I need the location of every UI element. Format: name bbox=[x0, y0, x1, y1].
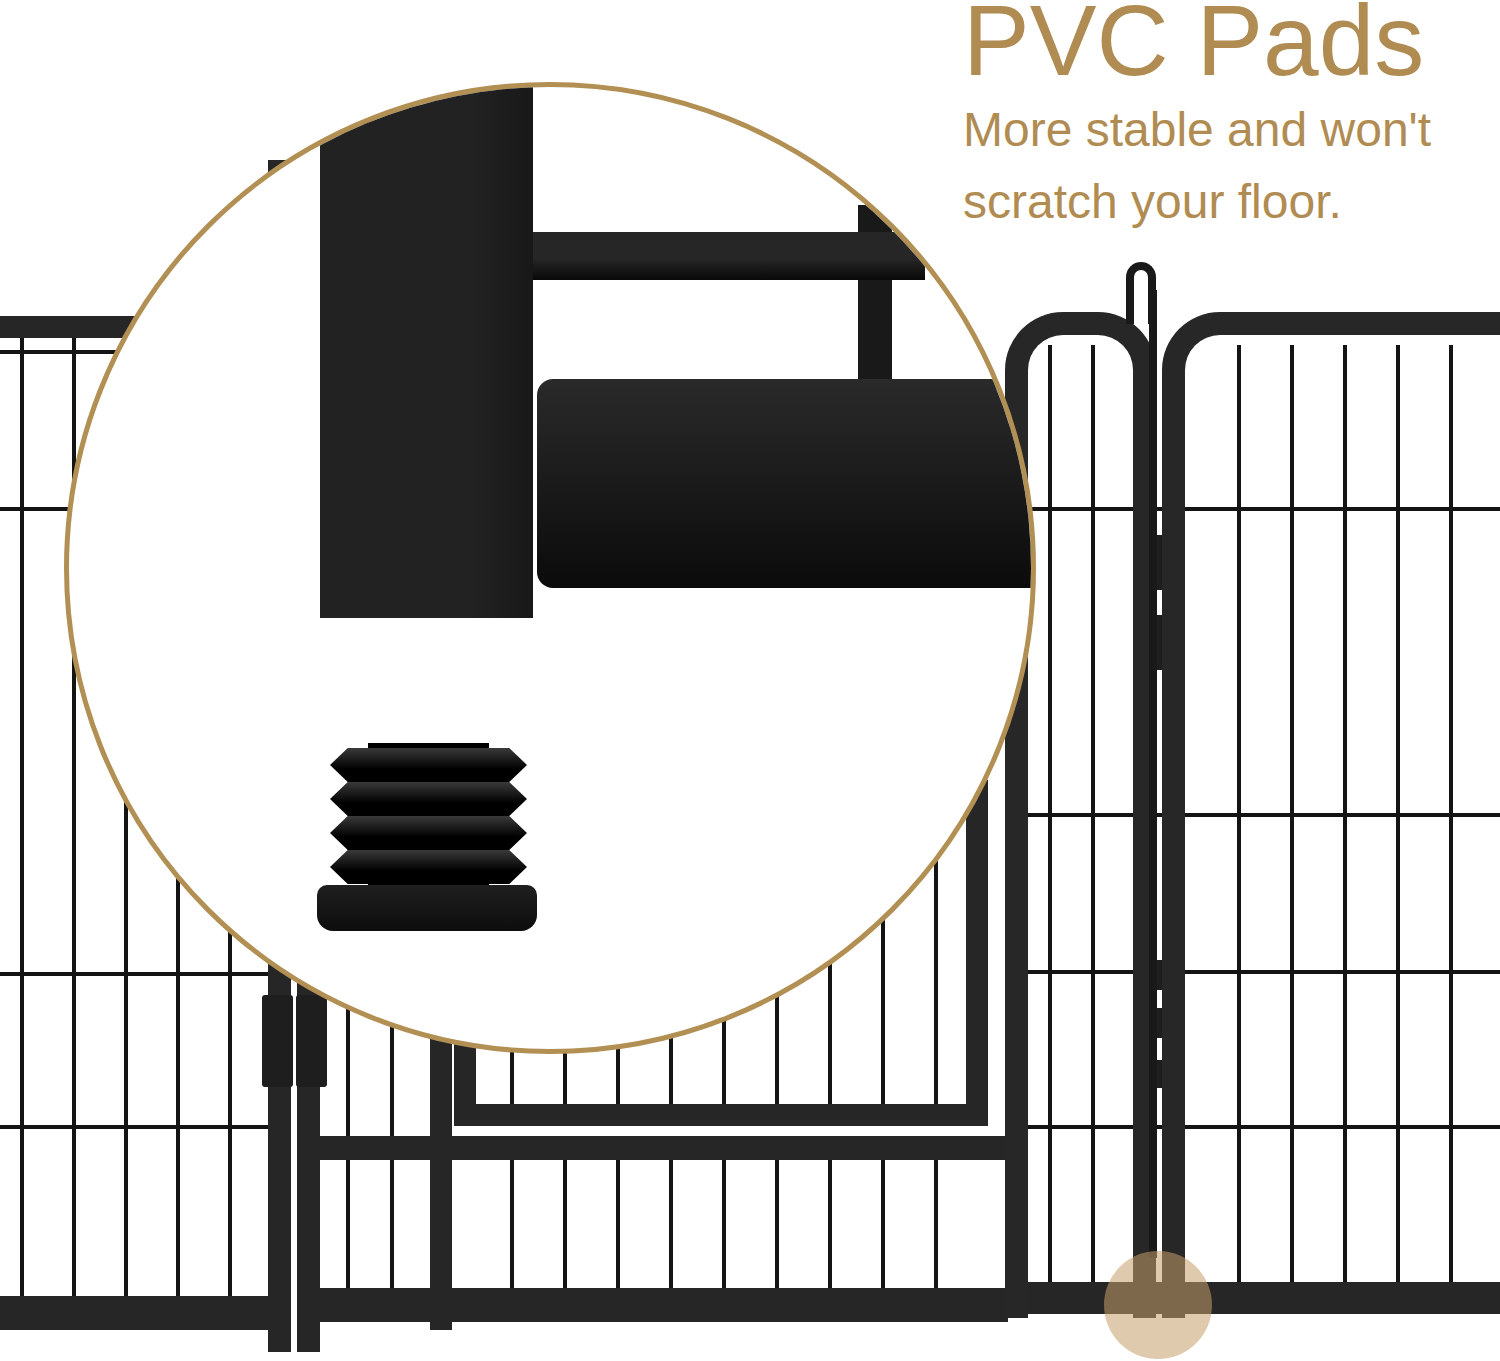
mesh-wire-vertical bbox=[390, 1160, 394, 1288]
mesh-wire-vertical bbox=[616, 1160, 620, 1288]
pad-fin bbox=[330, 782, 527, 816]
hinge-sleeve bbox=[262, 995, 293, 1087]
gate-stile bbox=[430, 1000, 452, 1330]
hinge-sleeve bbox=[296, 995, 327, 1087]
frame-post-magnified bbox=[320, 82, 533, 618]
callout-subtitle-line1: More stable and won't bbox=[963, 94, 1500, 166]
callout-text: PVC Pads More stable and won't scratch y… bbox=[963, 0, 1500, 238]
left-panel-bottom-bar bbox=[0, 1296, 270, 1330]
mesh-wire-horizontal bbox=[0, 1125, 270, 1129]
mesh-wire-vertical bbox=[346, 1160, 350, 1288]
bottom-tube-magnified bbox=[537, 379, 1036, 588]
mesh-wire-horizontal bbox=[0, 972, 270, 976]
mesh-wire-vertical bbox=[669, 1160, 673, 1288]
pad-foot-highlight-icon bbox=[1104, 1251, 1212, 1359]
pad-fin bbox=[330, 748, 527, 782]
arched-panel-frame bbox=[1005, 312, 1156, 1318]
right-panel-frame bbox=[1162, 312, 1500, 1318]
magnifier-callout-circle bbox=[64, 82, 1036, 1054]
mesh-wire-vertical bbox=[934, 1160, 938, 1288]
gate-bottom-bar bbox=[320, 1288, 1008, 1322]
product-image: PVC Pads More stable and won't scratch y… bbox=[0, 0, 1500, 1361]
door-frame-bottom bbox=[454, 1104, 988, 1126]
pad-base-cap bbox=[317, 885, 537, 931]
mesh-wire-vertical bbox=[20, 338, 24, 1296]
callout-title: PVC Pads bbox=[963, 0, 1500, 90]
mesh-wire-vertical bbox=[881, 1160, 885, 1288]
pad-fin bbox=[330, 850, 527, 884]
latch-hook-icon bbox=[1126, 262, 1156, 324]
pad-fin bbox=[330, 816, 527, 850]
mesh-wire-vertical bbox=[563, 1160, 567, 1288]
mesh-wire-vertical bbox=[722, 1160, 726, 1288]
door-frame-right bbox=[966, 780, 988, 1126]
mesh-wire-vertical bbox=[510, 1160, 514, 1288]
mesh-wire-vertical bbox=[775, 1160, 779, 1288]
callout-subtitle-line2: scratch your floor. bbox=[963, 166, 1500, 238]
mesh-wire-vertical bbox=[828, 1160, 832, 1288]
latch-rod bbox=[1149, 290, 1157, 1258]
gate-cross-rail bbox=[320, 1136, 1005, 1160]
mesh-wire-vertical bbox=[934, 850, 938, 1104]
bottom-rail-magnified bbox=[533, 232, 925, 280]
